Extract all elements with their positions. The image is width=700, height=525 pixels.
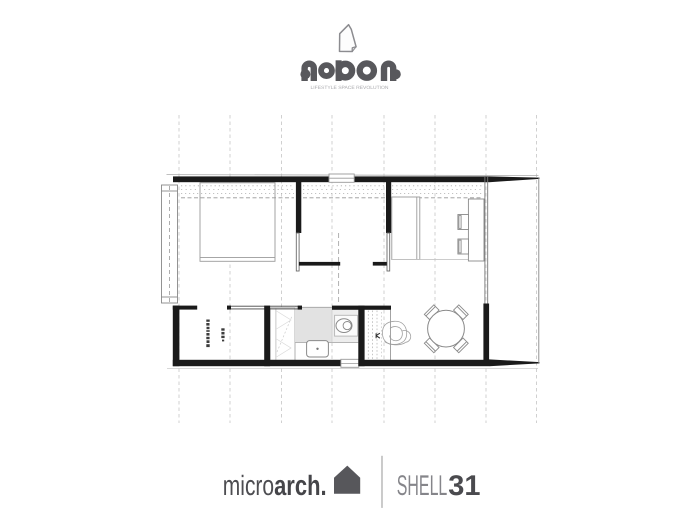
svg-text:31: 31 <box>448 470 480 502</box>
svg-text:arch.: arch. <box>274 470 327 501</box>
svg-text:SHELL: SHELL <box>397 470 448 502</box>
svg-text:micro: micro <box>223 470 274 501</box>
svg-text:LIFESTYLE SPACE REVOLUTION: LIFESTYLE SPACE REVOLUTION <box>311 85 389 90</box>
